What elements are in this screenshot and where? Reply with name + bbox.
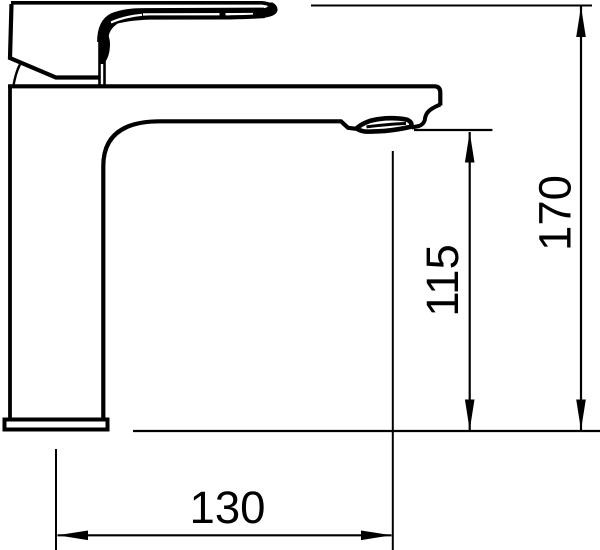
svg-text:115: 115 [417, 244, 468, 317]
svg-text:130: 130 [190, 482, 266, 533]
svg-text:170: 170 [530, 175, 581, 251]
